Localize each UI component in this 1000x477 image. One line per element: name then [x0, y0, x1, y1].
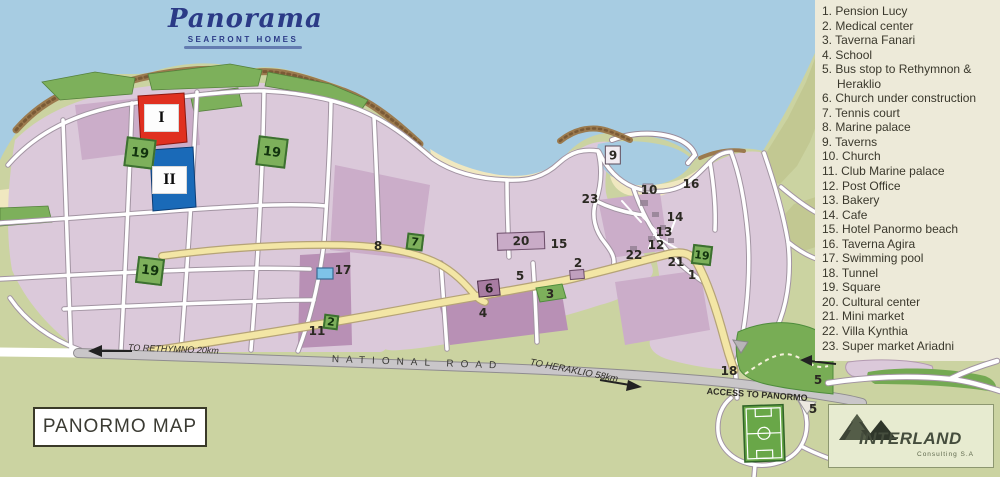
football-field	[743, 405, 785, 462]
panorama-logo-rule	[184, 46, 302, 49]
legend-item-number: 22.	[822, 324, 839, 338]
legend-item-number: 20.	[822, 295, 839, 309]
legend-item-number: 21.	[822, 309, 839, 323]
legend-item-label: Mini market	[842, 309, 904, 323]
legend-item-number: 5.	[822, 62, 832, 76]
legend-item: 21. Mini market	[822, 309, 1000, 324]
legend-item: 9. Taverns	[822, 135, 1000, 150]
legend-item: 23. Super market Ariadni	[822, 339, 1000, 354]
legend-item-number: 11.	[822, 164, 838, 178]
legend-item-number: 16.	[822, 237, 839, 251]
map-marker-label: 19	[262, 143, 282, 160]
panorama-logo: Panorama SEAFRONT HOMES	[168, 4, 318, 49]
map-marker: 19	[123, 136, 156, 169]
map-marker-label: 23	[582, 192, 599, 206]
map-marker: 22	[626, 248, 643, 262]
legend-item-label: Bakery	[842, 193, 879, 207]
map-marker: 2	[323, 314, 340, 331]
legend-item: 2. Medical center	[822, 19, 1000, 34]
map-marker: 5	[516, 269, 524, 283]
map-marker: 19	[691, 244, 713, 266]
legend-item: 20. Cultural center	[822, 295, 1000, 310]
legend-item: 6. Church under construction	[822, 91, 1000, 106]
map-marker: 21	[668, 255, 685, 269]
map-marker: 16	[683, 177, 700, 191]
map-marker-label: 5	[809, 402, 817, 416]
map-marker-label: 14	[667, 210, 684, 224]
phase-two-label: II	[152, 166, 187, 194]
legend-item-number: 6.	[822, 91, 832, 105]
legend-item: 3. Taverna Fanari	[822, 33, 1000, 48]
map-marker: 9	[605, 146, 621, 165]
map-marker: 12	[648, 238, 665, 252]
interland-subtitle: Consulting S.A	[917, 451, 974, 458]
map-marker-label: 6	[484, 281, 494, 296]
map-marker-label: 9	[609, 148, 617, 162]
map-title-box: PANORMO MAP	[33, 407, 207, 447]
map-marker-label: 13	[656, 225, 673, 239]
map-marker-label: 18	[721, 364, 738, 378]
map-marker: 19	[135, 256, 165, 286]
map-marker-label: 2	[326, 315, 335, 329]
panorama-logo-name: Panorama	[168, 4, 318, 34]
legend-item-number: 9.	[822, 135, 832, 149]
map-marker: 14	[667, 210, 684, 224]
legend-item-label: Tunnel	[842, 266, 878, 280]
map-marker-label: 10	[641, 183, 658, 197]
legend-item-number: 1.	[822, 4, 832, 18]
legend-item: 13. Bakery	[822, 193, 1000, 208]
panormo-map-image: Panorama SEAFRONT HOMES 1. Pension Lucy2…	[0, 0, 1000, 477]
legend-item: 10. Church	[822, 149, 1000, 164]
map-marker: 5	[814, 373, 822, 387]
legend-item: 12. Post Office	[822, 179, 1000, 194]
legend-item-label: Taverna Agira	[842, 237, 915, 251]
map-marker-label: 4	[479, 306, 487, 320]
legend-item: 14. Cafe	[822, 208, 1000, 223]
map-marker-label: 15	[551, 237, 568, 251]
phase-one-label: I	[144, 104, 179, 132]
legend-item-label: Super market Ariadni	[842, 339, 954, 353]
map-marker: 15	[551, 237, 568, 251]
map-marker: 19	[255, 135, 288, 168]
legend-item: 1. Pension Lucy	[822, 4, 1000, 19]
map-marker-label: 19	[130, 144, 150, 161]
legend-item-number: 15.	[822, 222, 839, 236]
legend-item-label: Church under construction	[835, 91, 976, 105]
legend-item-label: Cafe	[842, 208, 867, 222]
legend-item-label: Bus stop to Rethymnon & Heraklio	[835, 62, 971, 91]
legend-item-number: 23.	[822, 339, 839, 353]
legend-item: 19. Square	[822, 280, 1000, 295]
legend-item-label: Hotel Panormo beach	[842, 222, 958, 236]
map-marker: 4	[479, 306, 487, 320]
legend-item-label: Cultural center	[842, 295, 920, 309]
legend-item-number: 8.	[822, 120, 832, 134]
map-marker-label: 12	[648, 238, 665, 252]
legend-item-number: 3.	[822, 33, 832, 47]
legend-item: 15. Hotel Panormo beach	[822, 222, 1000, 237]
legend-item-label: Medical center	[835, 19, 913, 33]
legend: 1. Pension Lucy2. Medical center3. Taver…	[822, 4, 1000, 353]
legend-item-number: 18.	[822, 266, 839, 280]
legend-item-number: 2.	[822, 19, 832, 33]
legend-item-label: Square	[842, 280, 881, 294]
legend-item: 11. Club Marine palace	[822, 164, 1000, 179]
map-marker: 7	[406, 233, 425, 252]
map-marker-label: 5	[516, 269, 524, 283]
map-marker: 5	[809, 402, 817, 416]
legend-item-number: 13.	[822, 193, 839, 207]
map-marker-label: 19	[694, 248, 711, 263]
legend-item-label: Tennis court	[835, 106, 900, 120]
map-marker-label: 1	[688, 268, 696, 282]
map-marker: 23	[582, 192, 599, 206]
legend-item: 16. Taverna Agira	[822, 237, 1000, 252]
legend-item-number: 19.	[822, 280, 839, 294]
legend-item-number: 10.	[822, 149, 839, 163]
map-marker-label: 17	[335, 263, 352, 277]
map-marker: 10	[641, 183, 658, 197]
map-marker: 13	[656, 225, 673, 239]
legend-item: 4. School	[822, 48, 1000, 63]
map-marker: 2	[574, 256, 582, 270]
map-marker: 3	[546, 287, 554, 301]
legend-item-label: Marine palace	[835, 120, 910, 134]
map-marker-label: 2	[574, 256, 582, 270]
legend-item-label: Club Marine palace	[841, 164, 944, 178]
map-marker-label: 16	[683, 177, 700, 191]
legend-item: 17. Swimming pool	[822, 251, 1000, 266]
legend-item-label: Taverna Fanari	[835, 33, 915, 47]
legend-item-number: 12.	[822, 179, 839, 193]
interland-company-name: INTERLAND	[859, 429, 962, 449]
map-marker: 20	[497, 231, 546, 251]
legend-item-label: Swimming pool	[842, 251, 923, 265]
legend-item: 18. Tunnel	[822, 266, 1000, 281]
map-marker: 6	[477, 278, 501, 297]
map-marker-label: 7	[410, 235, 419, 249]
map-marker: 18	[721, 364, 738, 378]
legend-item: 22. Villa Kynthia	[822, 324, 1000, 339]
panorama-logo-tagline: SEAFRONT HOMES	[168, 35, 318, 44]
map-marker: 1	[688, 268, 696, 282]
map-marker: 8	[374, 239, 382, 253]
map-marker-label: 20	[512, 234, 529, 249]
swimming-pool	[317, 268, 333, 279]
legend-item-label: School	[835, 48, 872, 62]
legend-item-label: Church	[842, 149, 881, 163]
map-marker-label: 5	[814, 373, 822, 387]
map-marker: 17	[335, 263, 352, 277]
legend-item-label: Post Office	[842, 179, 900, 193]
map-marker-label: 21	[668, 255, 685, 269]
interland-logo-box: INTERLAND Consulting S.A	[828, 404, 994, 468]
legend-item-label: Pension Lucy	[835, 4, 907, 18]
legend-item: 8. Marine palace	[822, 120, 1000, 135]
legend-item: 5. Bus stop to Rethymnon & Heraklio	[822, 62, 1000, 91]
legend-item: 7. Tennis court	[822, 106, 1000, 121]
legend-item-label: Villa Kynthia	[842, 324, 908, 338]
legend-item-number: 7.	[822, 106, 832, 120]
map-marker-label: 8	[374, 239, 382, 253]
legend-item-number: 17.	[822, 251, 839, 265]
legend-item-number: 4.	[822, 48, 832, 62]
map-marker-label: 3	[546, 287, 554, 301]
map-marker-label: 19	[140, 262, 160, 279]
map-marker-label: 22	[626, 248, 643, 262]
legend-item-label: Taverns	[835, 135, 877, 149]
legend-item-number: 14.	[822, 208, 839, 222]
